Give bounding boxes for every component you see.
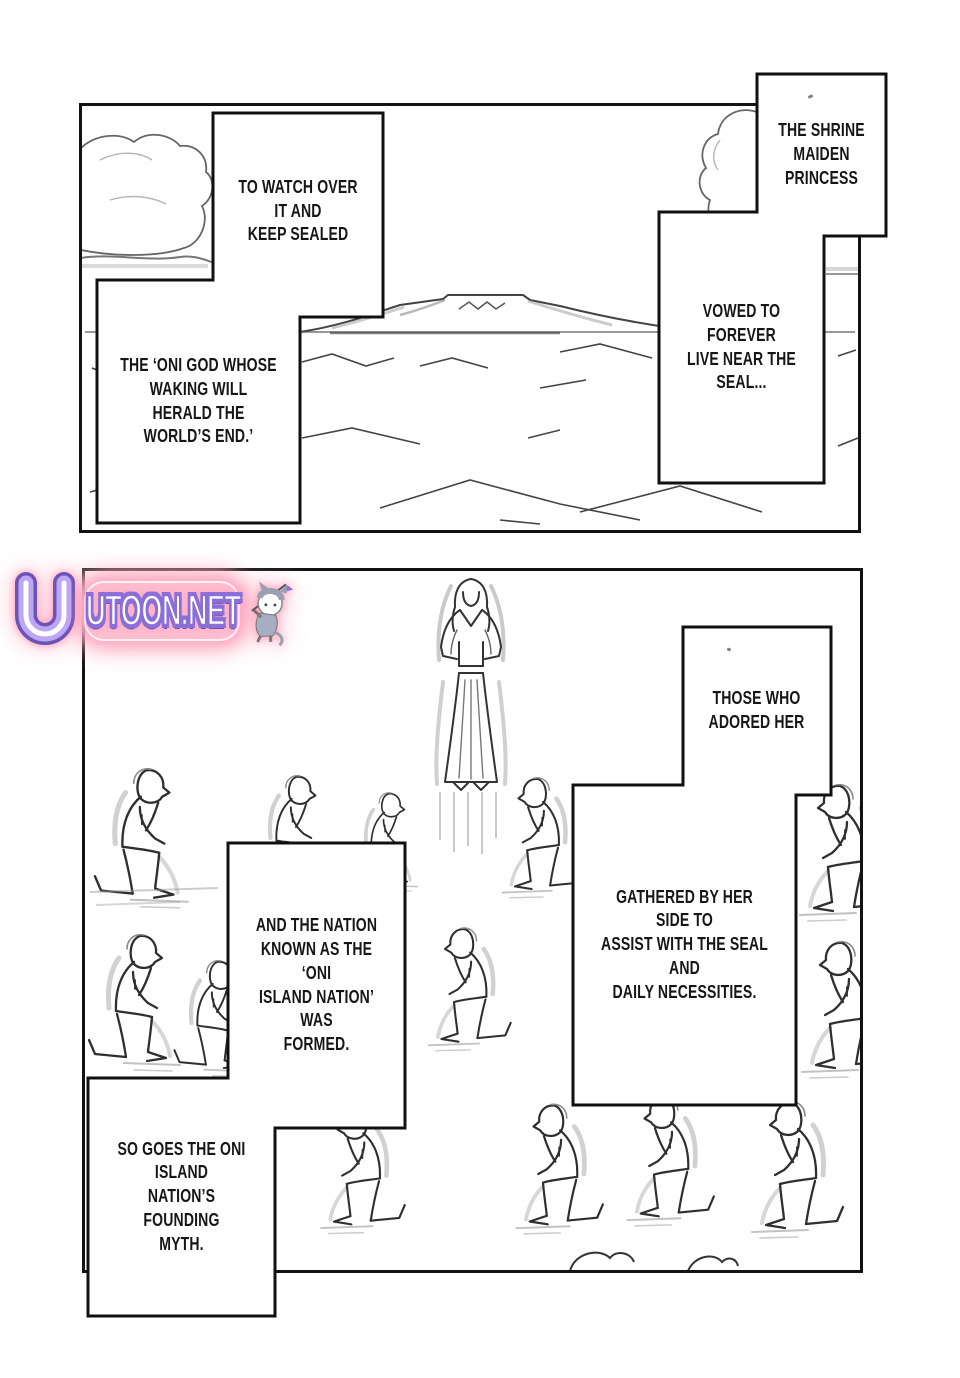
watermark-site-name: UTOON.NET: [86, 586, 241, 636]
caption-gathered: GATHERED BY HER SIDE TO ASSIST WITH THE …: [573, 785, 796, 1105]
caption-founding-myth: SO GOES THE ONI ISLAND NATION’S FOUNDING…: [88, 1078, 275, 1316]
caption-text: TO WATCH OVER IT AND KEEP SEALED: [232, 176, 365, 247]
caption-text: THE ‘ONI GOD WHOSE WAKING WILL HERALD TH…: [119, 354, 277, 449]
caption-vowed: VOWED TO FOREVER LIVE NEAR THE SEAL...: [659, 212, 824, 483]
caption-text: THE SHRINE MAIDEN PRINCESS: [778, 119, 865, 190]
caption-those-who: THOSE WHO ADORED HER: [683, 627, 831, 795]
watermark-banner: UTOON.NET: [86, 583, 238, 639]
caption-text: AND THE NATION KNOWN AS THE ‘ONI ISLAND …: [247, 914, 385, 1057]
caption-text: GATHERED BY HER SIDE TO ASSIST WITH THE …: [598, 886, 772, 1005]
caption-text: THOSE WHO ADORED HER: [709, 687, 805, 735]
cat-mascot-icon: [238, 574, 297, 648]
caption-text: VOWED TO FOREVER LIVE NEAR THE SEAL...: [677, 300, 806, 395]
u-horseshoe-logo-icon: [6, 569, 84, 653]
manga-page: TO WATCH OVER IT AND KEEP SEALED THE ‘ON…: [0, 0, 960, 1378]
caption-oni-god: THE ‘ONI GOD WHOSE WAKING WILL HERALD TH…: [97, 280, 300, 523]
site-watermark: UTOON.NET: [6, 564, 292, 658]
caption-text: SO GOES THE ONI ISLAND NATION’S FOUNDING…: [109, 1138, 255, 1257]
